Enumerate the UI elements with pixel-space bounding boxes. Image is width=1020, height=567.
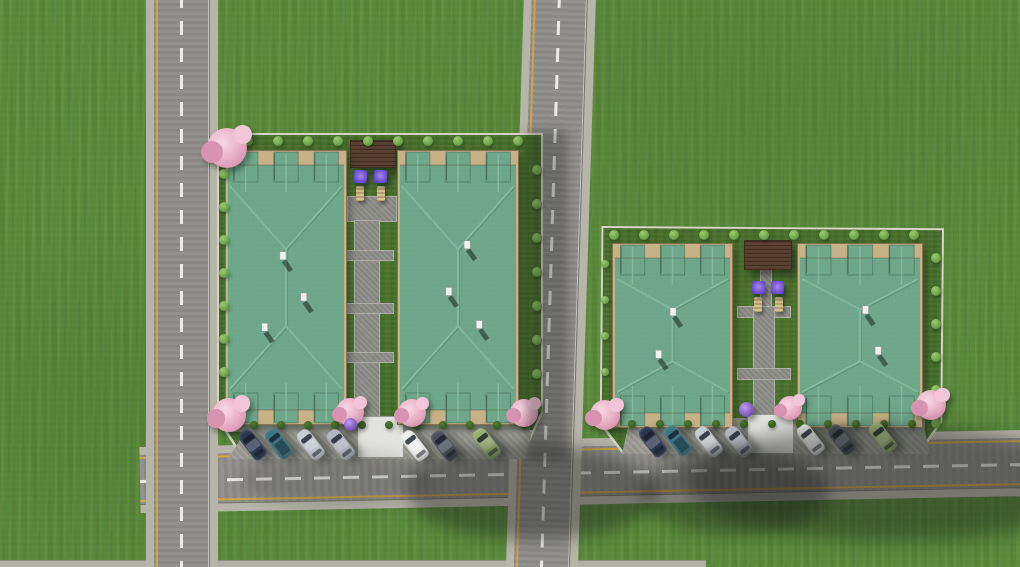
bottom-road-strip <box>0 560 706 567</box>
courtyard-path <box>340 303 394 314</box>
shrub <box>423 136 433 146</box>
shrub <box>331 421 339 429</box>
shrub <box>304 421 312 429</box>
sidewalk <box>209 0 218 567</box>
shrub <box>219 169 229 179</box>
patio-umbrella <box>374 170 388 184</box>
patio-umbrella <box>752 281 766 295</box>
shrub <box>532 267 542 277</box>
aerial-site-render <box>0 0 1020 567</box>
dashed-center-line <box>180 0 183 567</box>
apartment-building <box>612 243 733 428</box>
shrub <box>601 368 609 376</box>
shrub <box>532 233 542 243</box>
courtyard-path <box>347 196 397 222</box>
shrub <box>699 230 709 240</box>
cherry-blossom-tree <box>778 396 802 420</box>
shrub <box>303 136 313 146</box>
shrub <box>852 420 860 428</box>
courtyard-path <box>340 352 394 363</box>
purple-shrub <box>739 402 754 417</box>
shrub <box>273 136 283 146</box>
shrub <box>385 421 393 429</box>
sun-lounger <box>377 186 385 201</box>
shrub <box>363 136 373 146</box>
courtyard-path <box>753 306 775 428</box>
shrub <box>819 230 829 240</box>
shrub <box>219 202 229 212</box>
shrub <box>740 420 748 428</box>
shrub <box>669 230 679 240</box>
shrub <box>219 367 229 377</box>
shrub <box>393 136 403 146</box>
shrub <box>483 136 493 146</box>
shrub <box>532 335 542 345</box>
shrub <box>609 230 619 240</box>
shrub <box>931 352 941 362</box>
yellow-edge-line <box>156 0 158 567</box>
shrub <box>656 420 664 428</box>
sun-lounger <box>356 186 364 201</box>
shrub <box>909 230 919 240</box>
shrub <box>513 136 523 146</box>
shrub <box>219 235 229 245</box>
shrub <box>601 296 609 304</box>
shrub <box>684 420 692 428</box>
patio-umbrella <box>354 170 368 184</box>
cherry-blossom-tree <box>590 400 620 430</box>
shrub <box>908 420 916 428</box>
sun-lounger <box>754 297 762 312</box>
shrub <box>493 421 501 429</box>
shrub <box>219 268 229 278</box>
road-surface <box>154 0 210 567</box>
patio-umbrella <box>771 281 785 295</box>
apartment-building <box>225 150 347 425</box>
cherry-blossom-tree <box>207 128 247 168</box>
shrub <box>931 319 941 329</box>
shrub <box>601 260 609 268</box>
shrub <box>532 301 542 311</box>
courtyard-path <box>340 250 394 261</box>
pergola-deck <box>744 240 792 270</box>
courtyard-path <box>737 368 791 380</box>
cherry-blossom-tree <box>510 399 538 427</box>
shrub <box>729 230 739 240</box>
shrub <box>639 230 649 240</box>
cherry-blossom-tree <box>916 390 946 420</box>
shrub <box>849 230 859 240</box>
shrub <box>931 286 941 296</box>
shrub <box>601 332 609 340</box>
apartment-building <box>397 150 519 425</box>
shrub <box>333 136 343 146</box>
shrub <box>789 230 799 240</box>
shrub <box>532 369 542 379</box>
shrub <box>439 421 447 429</box>
shrub <box>277 421 285 429</box>
shrub <box>532 199 542 209</box>
shrub <box>628 420 636 428</box>
shrub <box>768 420 776 428</box>
purple-shrub <box>344 418 357 431</box>
shrub <box>532 165 542 175</box>
pergola-deck <box>350 140 396 168</box>
shrub <box>879 230 889 240</box>
cherry-blossom-tree <box>212 398 246 432</box>
shrub <box>219 334 229 344</box>
shrub <box>219 301 229 311</box>
sun-lounger <box>775 297 783 312</box>
cherry-blossom-tree <box>398 399 426 427</box>
shrub <box>759 230 769 240</box>
shrub <box>931 253 941 263</box>
shrub <box>466 421 474 429</box>
shrub <box>250 421 258 429</box>
road-vertical-left <box>146 0 218 567</box>
shrub <box>712 420 720 428</box>
apartment-building <box>797 243 923 428</box>
shrub <box>453 136 463 146</box>
